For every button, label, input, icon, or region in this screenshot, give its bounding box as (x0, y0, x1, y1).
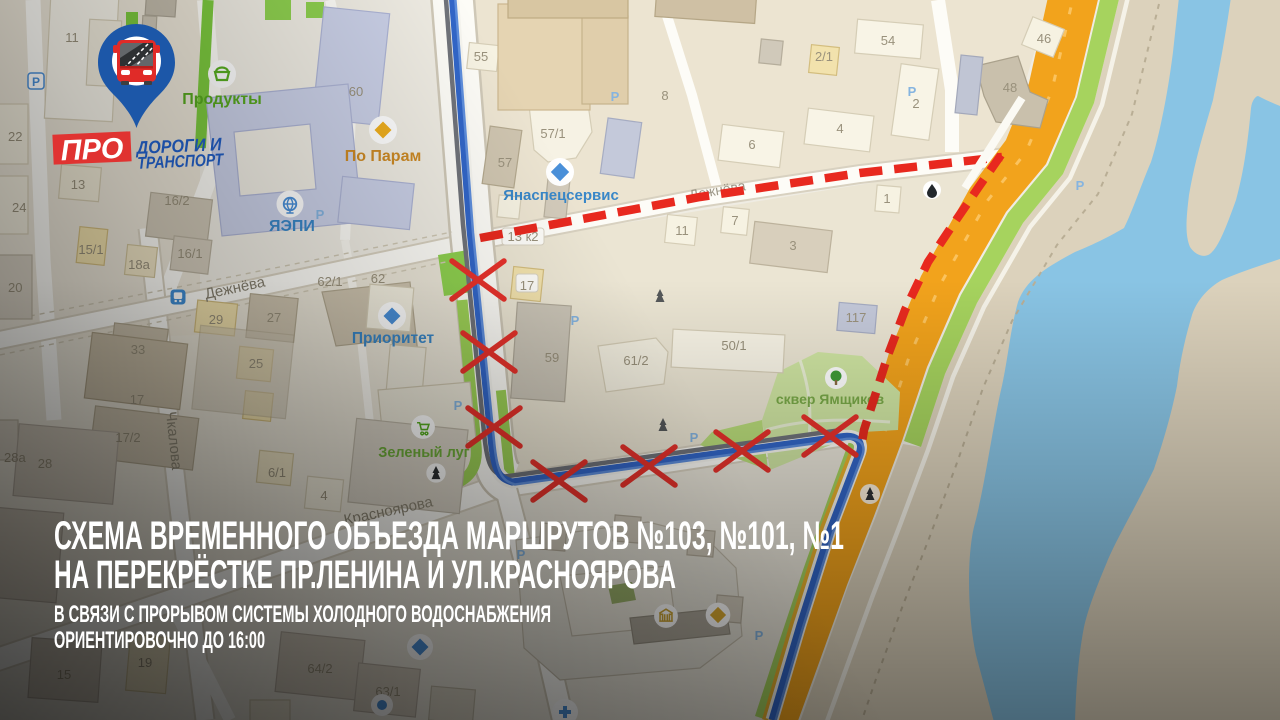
svg-text:ОРИЕНТИРОВОЧНО ДО 16:00: ОРИЕНТИРОВОЧНО ДО 16:00 (54, 627, 265, 654)
svg-text:НА ПЕРЕКРЁСТКЕ ПР.ЛЕНИНА И УЛ.: НА ПЕРЕКРЁСТКЕ ПР.ЛЕНИНА И УЛ.КРАСНОЯРОВ… (54, 553, 676, 597)
svg-text:ТРАНСПОРТ: ТРАНСПОРТ (137, 150, 225, 173)
svg-text:СХЕМА ВРЕМЕННОГО ОБЪЕЗДА МАРШР: СХЕМА ВРЕМЕННОГО ОБЪЕЗДА МАРШРУТОВ №103,… (54, 514, 844, 558)
svg-text:В СВЯЗИ С ПРОРЫВОМ СИСТЕМЫ ХОЛ: В СВЯЗИ С ПРОРЫВОМ СИСТЕМЫ ХОЛОДНОГО ВОД… (54, 601, 551, 628)
svg-text:ПРО: ПРО (60, 133, 125, 168)
